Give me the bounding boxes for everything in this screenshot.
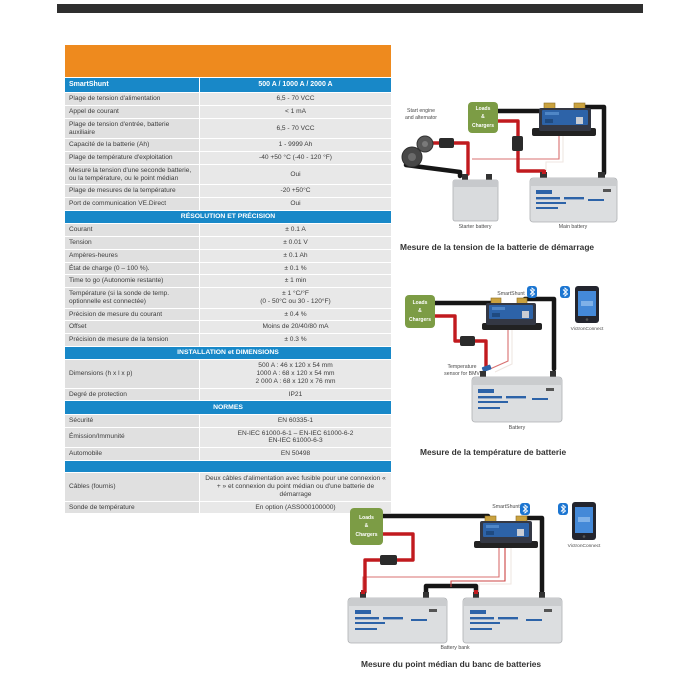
smartshunt-device: [474, 516, 538, 548]
table-row: Émission/ImmunitéEN-IEC 61000-6-1 – EN-I…: [65, 428, 391, 448]
section-header-normes: NORMES: [65, 401, 391, 413]
diagram-battery-temperature: Loads & Chargers SmartShunt VictronConne…: [398, 283, 666, 461]
battery: [472, 371, 562, 422]
table-row: Tension± 0.01 V: [65, 237, 391, 249]
starter-battery-label: Starter battery: [450, 224, 500, 231]
main-battery-label: Main battery: [548, 224, 598, 231]
table-row: Plage de mesures de la température-20 +5…: [65, 185, 391, 197]
bluetooth-icon: [560, 286, 570, 298]
table-row: Courant± 0.1 A: [65, 224, 391, 236]
table-row: Plage de tension d'alimentation6,5 - 70 …: [65, 93, 391, 105]
victronconnect-label: VictronConnect: [564, 327, 610, 333]
smartshunt-device: [482, 298, 542, 330]
thin-sense-wires: [490, 325, 512, 372]
victronconnect-label: VictronConnect: [561, 544, 607, 550]
page-top-rule: [57, 4, 643, 13]
table-row: État de charge (0 – 100 %).± 0.1 %: [65, 263, 391, 275]
smartshunt-label: SmartShunt: [488, 291, 534, 298]
table-row: SécuritéEN 60335-1: [65, 415, 391, 427]
battery-bank-battery-2: [463, 590, 562, 643]
battery-label: Battery: [492, 425, 542, 432]
section-header-installation: INSTALLATION et DIMENSIONS: [65, 347, 391, 359]
fuse-holder: [439, 136, 523, 151]
spec-table: SmartShunt 500 A / 1000 A / 2000 A Plage…: [65, 45, 391, 513]
temp-sensor-label: Temperature sensor for BMV: [440, 364, 484, 378]
table-row: Plage de tension d'entrée, batterie auxi…: [65, 119, 391, 139]
table-row: OffsetMoins de 20/40/80 mA: [65, 321, 391, 333]
diagram-2-graphics: [398, 283, 666, 443]
start-engine-label: Start engine and alternator: [398, 108, 444, 122]
diagram-battery-bank-midpoint: Loads & Chargers SmartShunt VictronConne…: [333, 498, 649, 673]
loads-chargers-box: Loads & Chargers: [405, 295, 435, 328]
table-row: Capacité de la batterie (Ah)1 - 9999 Ah: [65, 139, 391, 151]
loads-chargers-box: Loads & Chargers: [350, 508, 383, 545]
table-row: Degré de protectionIP21: [65, 389, 391, 401]
smartphone: [575, 286, 599, 323]
datasheet-page: { "table": { "header": { "left": "SmartS…: [0, 0, 700, 700]
table-row: Dimensions (h x l x p)500 A : 46 x 120 x…: [65, 360, 391, 387]
table-row: AutomobileEN 50498: [65, 448, 391, 460]
table-orange-banner: [65, 45, 391, 77]
battery-bank-label: Battery bank: [430, 645, 480, 652]
section-header-resolution: RÉSOLUTION ET PRÉCISION: [65, 211, 391, 223]
starter-battery: [453, 174, 498, 221]
diagram-starter-battery: Loads & Chargers Start engine and altern…: [398, 83, 666, 255]
main-battery: [530, 170, 617, 222]
table-header-models: 500 A / 1000 A / 2000 A: [199, 78, 391, 92]
table-row: Plage de température d'exploitation-40 +…: [65, 152, 391, 164]
table-row: Ampères-heures± 0.1 Ah: [65, 250, 391, 262]
diagram-3-caption: Mesure du point médian du banc de batter…: [361, 659, 541, 669]
loads-chargers-box: Loads & Chargers: [468, 102, 498, 133]
diagram-2-caption: Mesure de la température de batterie: [420, 447, 566, 457]
table-row: Appel de courant< 1 mA: [65, 106, 391, 118]
diagram-1-caption: Mesure de la tension de la batterie de d…: [400, 242, 594, 252]
smartshunt-label: SmartShunt: [481, 504, 531, 511]
table-row: Port de communication VE.DirectOui: [65, 198, 391, 210]
fuse-holder: [460, 336, 475, 346]
table-row: Mesure la tension d'une seconde batterie…: [65, 165, 391, 185]
diagram-1-graphics: [398, 83, 666, 233]
bluetooth-icon: [558, 503, 568, 515]
fuse-holder: [380, 555, 397, 565]
alternator-icon: [402, 136, 433, 167]
battery-bank-battery-1: [348, 590, 447, 643]
table-row: Time to go (Autonomie restante)± 1 min: [65, 275, 391, 287]
table-row: Précision de mesure de la tension± 0.3 %: [65, 334, 391, 346]
table-header-row: SmartShunt 500 A / 1000 A / 2000 A: [65, 78, 391, 92]
smartphone: [572, 502, 596, 540]
section-header-accessories: [65, 461, 391, 472]
table-row: Câbles (fournis)Deux câbles d'alimentati…: [65, 473, 391, 500]
table-row: Température (si la sonde de temp. option…: [65, 288, 391, 308]
table-row: Précision de mesure du courant± 0.4 %: [65, 309, 391, 321]
table-header-product: SmartShunt: [65, 78, 199, 92]
